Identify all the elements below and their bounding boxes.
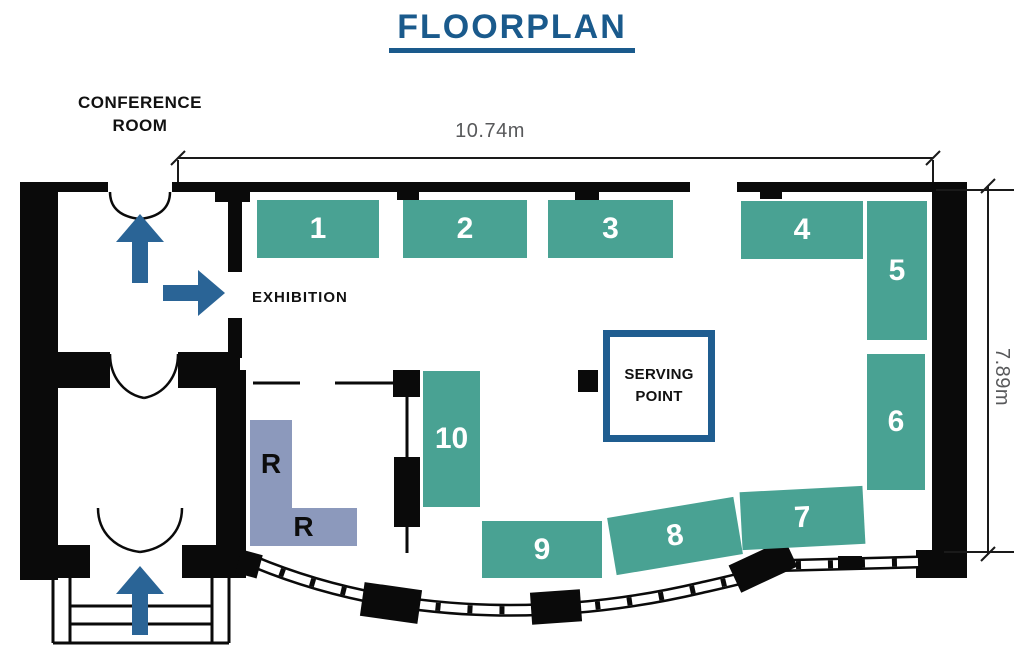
floorplan-title: FLOORPLAN bbox=[389, 8, 635, 53]
booth-1: 1 bbox=[257, 200, 379, 258]
booth-5: 5 bbox=[867, 201, 927, 340]
serving-pillar bbox=[578, 370, 598, 392]
serving-point-box: SERVING POINT bbox=[603, 330, 715, 442]
width-dimension-label: 10.74m bbox=[420, 120, 560, 143]
entry-arrow-up-icon bbox=[116, 214, 164, 283]
reserved-booth-vertical: R bbox=[250, 420, 292, 508]
serving-point-label: SERVING POINT bbox=[613, 364, 705, 408]
floorplan-canvas: FLOORPLAN CONFERENCE ROOM EXHIBITION 10.… bbox=[0, 0, 1024, 647]
booth-3: 3 bbox=[548, 200, 673, 258]
entry-arrow-right-icon bbox=[163, 270, 225, 316]
booth-2: 2 bbox=[403, 200, 527, 258]
booth-4: 4 bbox=[741, 201, 863, 259]
booth-7: 7 bbox=[740, 486, 866, 550]
conference-room-label: CONFERENCE ROOM bbox=[55, 92, 225, 138]
reserved-booth-horizontal: R bbox=[250, 508, 357, 546]
height-dimension-label: 7.89m bbox=[962, 337, 1024, 417]
exhibition-label: EXHIBITION bbox=[252, 289, 348, 306]
booth-9: 9 bbox=[482, 521, 602, 578]
booth-10: 10 bbox=[423, 371, 480, 507]
booth-6: 6 bbox=[867, 354, 925, 490]
